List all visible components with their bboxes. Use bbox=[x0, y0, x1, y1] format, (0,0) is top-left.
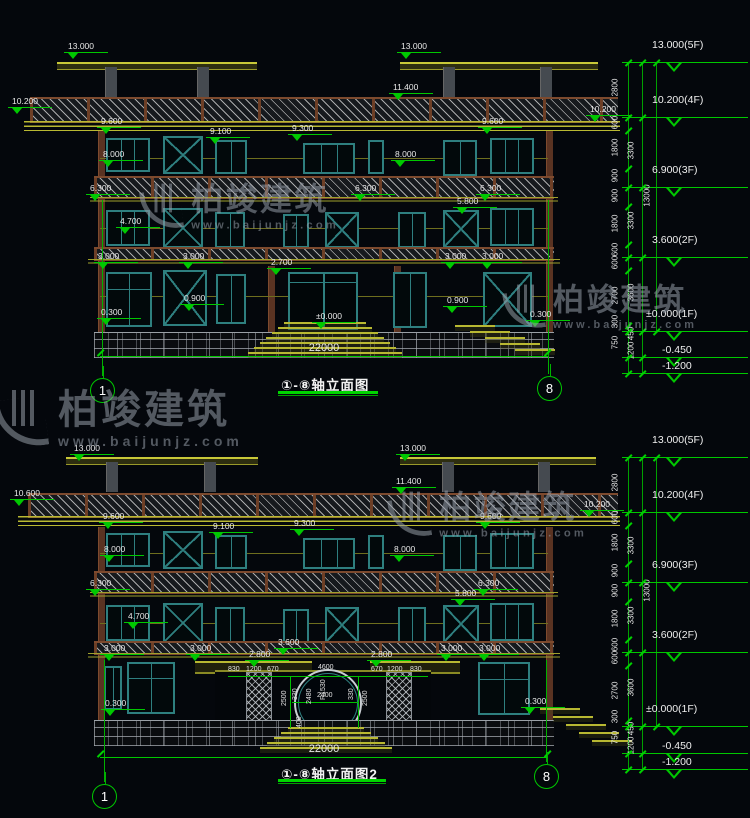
elevation-label: 0.300 bbox=[530, 310, 551, 319]
elevation-label: 11.400 bbox=[396, 477, 421, 486]
elevation-label: 5.800 bbox=[455, 589, 476, 598]
entrance-dim-label: 2500 bbox=[281, 690, 288, 706]
cad-canvas: { "meta": {"brand": "柏竣建筑", "site": "www… bbox=[0, 0, 750, 818]
entrance-dim-label: 2500 bbox=[362, 690, 369, 706]
elevation-label: 8.000 bbox=[394, 545, 415, 554]
entrance-dim-label: 330 bbox=[348, 688, 355, 700]
chain-dim-label: 750 bbox=[611, 723, 620, 753]
axis-line bbox=[548, 200, 549, 374]
elevation-label: 13.000 bbox=[68, 42, 94, 51]
elevation-label: 0.900 bbox=[447, 296, 468, 305]
elevation-label: 10.200 bbox=[12, 97, 38, 106]
elevation-label: 2.800 bbox=[249, 650, 270, 659]
elevation-label: 8.000 bbox=[104, 545, 125, 554]
level-label: -0.450 bbox=[662, 740, 692, 752]
elevation-label: 3.000 bbox=[104, 644, 125, 653]
entrance-dim-line bbox=[290, 676, 291, 728]
axis-bubble-1: 1 bbox=[90, 378, 115, 403]
level-label: 10.200(4F) bbox=[652, 94, 703, 106]
elevation-label: 5.800 bbox=[457, 197, 478, 206]
axis-bubble-8: 8 bbox=[537, 376, 562, 401]
level-label: ±0.000(1F) bbox=[646, 308, 697, 320]
level-label: -1.200 bbox=[662, 756, 692, 768]
elevation-label: 9.600 bbox=[103, 512, 124, 521]
entrance-dim-label: 330 bbox=[292, 688, 299, 700]
level-label: ±0.000(1F) bbox=[646, 703, 697, 715]
entrance-dim-label: 400 bbox=[296, 716, 303, 728]
entrance-dim-label: 670 bbox=[267, 666, 279, 673]
elevation-label: 3.000 bbox=[441, 644, 462, 653]
elevation-label: 9.100 bbox=[213, 522, 234, 531]
overall-dim-line bbox=[100, 356, 548, 357]
elevation-label: 9.600 bbox=[480, 512, 501, 521]
level-label: 10.200(4F) bbox=[652, 489, 703, 501]
elevation-label: 4.700 bbox=[120, 217, 141, 226]
level-label: 3.600(2F) bbox=[652, 234, 698, 246]
level-label: 6.900(3F) bbox=[652, 559, 698, 571]
elevation-label: 3.000 bbox=[479, 644, 500, 653]
elevation-label: 6.300 bbox=[355, 184, 376, 193]
elevation-label: 3.000 bbox=[183, 252, 204, 261]
entrance-dim-label: 4600 bbox=[318, 664, 334, 671]
elevation-label: 0.300 bbox=[101, 308, 122, 317]
annotation-vline bbox=[642, 62, 643, 374]
entrance-dim-label: 1200 bbox=[387, 666, 403, 673]
entrance-dim-label: 2480 bbox=[306, 688, 313, 704]
chain-dim-label: 3300 bbox=[627, 206, 636, 236]
chain-dim-label: 3300 bbox=[627, 136, 636, 166]
entrance-dim-label: R1530 bbox=[320, 679, 327, 700]
elevation-label: 6.300 bbox=[480, 184, 501, 193]
chain-dim-label: 2800 bbox=[611, 468, 620, 498]
elevation-label: 11.400 bbox=[393, 83, 418, 92]
elevation-label: 9.600 bbox=[482, 117, 503, 126]
chain-dim-label: 750 bbox=[611, 328, 620, 358]
entrance-dim-label: 830 bbox=[228, 666, 240, 673]
entrance-dim-line bbox=[358, 676, 359, 728]
elevation-label: 9.100 bbox=[210, 127, 231, 136]
elevation-label: 13.000 bbox=[74, 444, 100, 453]
chain-dim-label: 600 bbox=[611, 248, 620, 278]
elevation-label: ±0.000 bbox=[316, 312, 342, 321]
elevation-label: 10.200 bbox=[584, 500, 610, 509]
elevation-label: 4.700 bbox=[128, 612, 149, 621]
level-label: 13.000(5F) bbox=[652, 434, 703, 446]
chain-dim-label: 3300 bbox=[627, 601, 636, 631]
elevation-label: 6.300 bbox=[90, 184, 111, 193]
elevation-label: 3.000 bbox=[482, 252, 503, 261]
level-label: -1.200 bbox=[662, 360, 692, 372]
chain-dim-label: 3600 bbox=[627, 673, 636, 703]
elevation-label: 0.300 bbox=[525, 697, 546, 706]
elevation-label: 8.000 bbox=[103, 150, 124, 159]
elevation-label: 3.000 bbox=[98, 252, 119, 261]
elevation-label: 3.600 bbox=[278, 638, 299, 647]
elevation-label: 10.600 bbox=[14, 489, 40, 498]
title-underline bbox=[278, 391, 378, 394]
elevation-label: 6.300 bbox=[478, 579, 499, 588]
overall-dim-line bbox=[100, 757, 548, 758]
overall-width-dim: 22000 bbox=[274, 743, 374, 755]
axis-bubble-1: 1 bbox=[92, 784, 117, 809]
elevation-label: 6.300 bbox=[90, 579, 111, 588]
chain-dim-label: 900 bbox=[611, 181, 620, 211]
level-label: 3.600(2F) bbox=[652, 629, 698, 641]
level-label: -0.450 bbox=[662, 344, 692, 356]
chain-dim-label: 1200 bbox=[627, 336, 636, 366]
elevation-label: 13.000 bbox=[400, 444, 426, 453]
entrance-dim-line bbox=[292, 702, 358, 703]
entrance-dim-label: 670 bbox=[371, 666, 383, 673]
axis-line bbox=[104, 660, 105, 782]
elevation-label: 9.600 bbox=[101, 117, 122, 126]
chain-dim-label: 2800 bbox=[611, 73, 620, 103]
entrance-dim-line bbox=[228, 676, 428, 677]
elevation-label: 13.000 bbox=[401, 42, 427, 51]
chain-dim-label: 1800 bbox=[611, 528, 620, 558]
title-underline bbox=[278, 779, 386, 782]
chain-dim-label: 900 bbox=[611, 576, 620, 606]
elevation-label: 2.700 bbox=[271, 258, 292, 267]
level-label: 6.900(3F) bbox=[652, 164, 698, 176]
overall-width-dim: 22000 bbox=[274, 342, 374, 354]
elevation-label: 9.300 bbox=[294, 519, 315, 528]
elevation-label: 0.300 bbox=[105, 699, 126, 708]
chain-dim-label: 1200 bbox=[627, 731, 636, 761]
chain-dim-label: 3600 bbox=[627, 278, 636, 308]
elevation-label: 9.300 bbox=[292, 124, 313, 133]
annotation-vline bbox=[642, 457, 643, 769]
elevation-label: 3.000 bbox=[445, 252, 466, 261]
entrance-dim-label: 1200 bbox=[246, 666, 262, 673]
elevation-label: 8.000 bbox=[395, 150, 416, 159]
axis-bubble-8: 8 bbox=[534, 764, 559, 789]
chain-dim-label: 1800 bbox=[611, 133, 620, 163]
elevation-label: 2.800 bbox=[371, 650, 392, 659]
elevation-label: 3.000 bbox=[190, 644, 211, 653]
elevation-label: 0.900 bbox=[184, 294, 205, 303]
chain-dim-label: 600 bbox=[611, 643, 620, 673]
level-label: 13.000(5F) bbox=[652, 39, 703, 51]
entrance-dim-label: 830 bbox=[410, 666, 422, 673]
chain-dim-label: 3300 bbox=[627, 531, 636, 561]
axis-line bbox=[546, 660, 547, 762]
